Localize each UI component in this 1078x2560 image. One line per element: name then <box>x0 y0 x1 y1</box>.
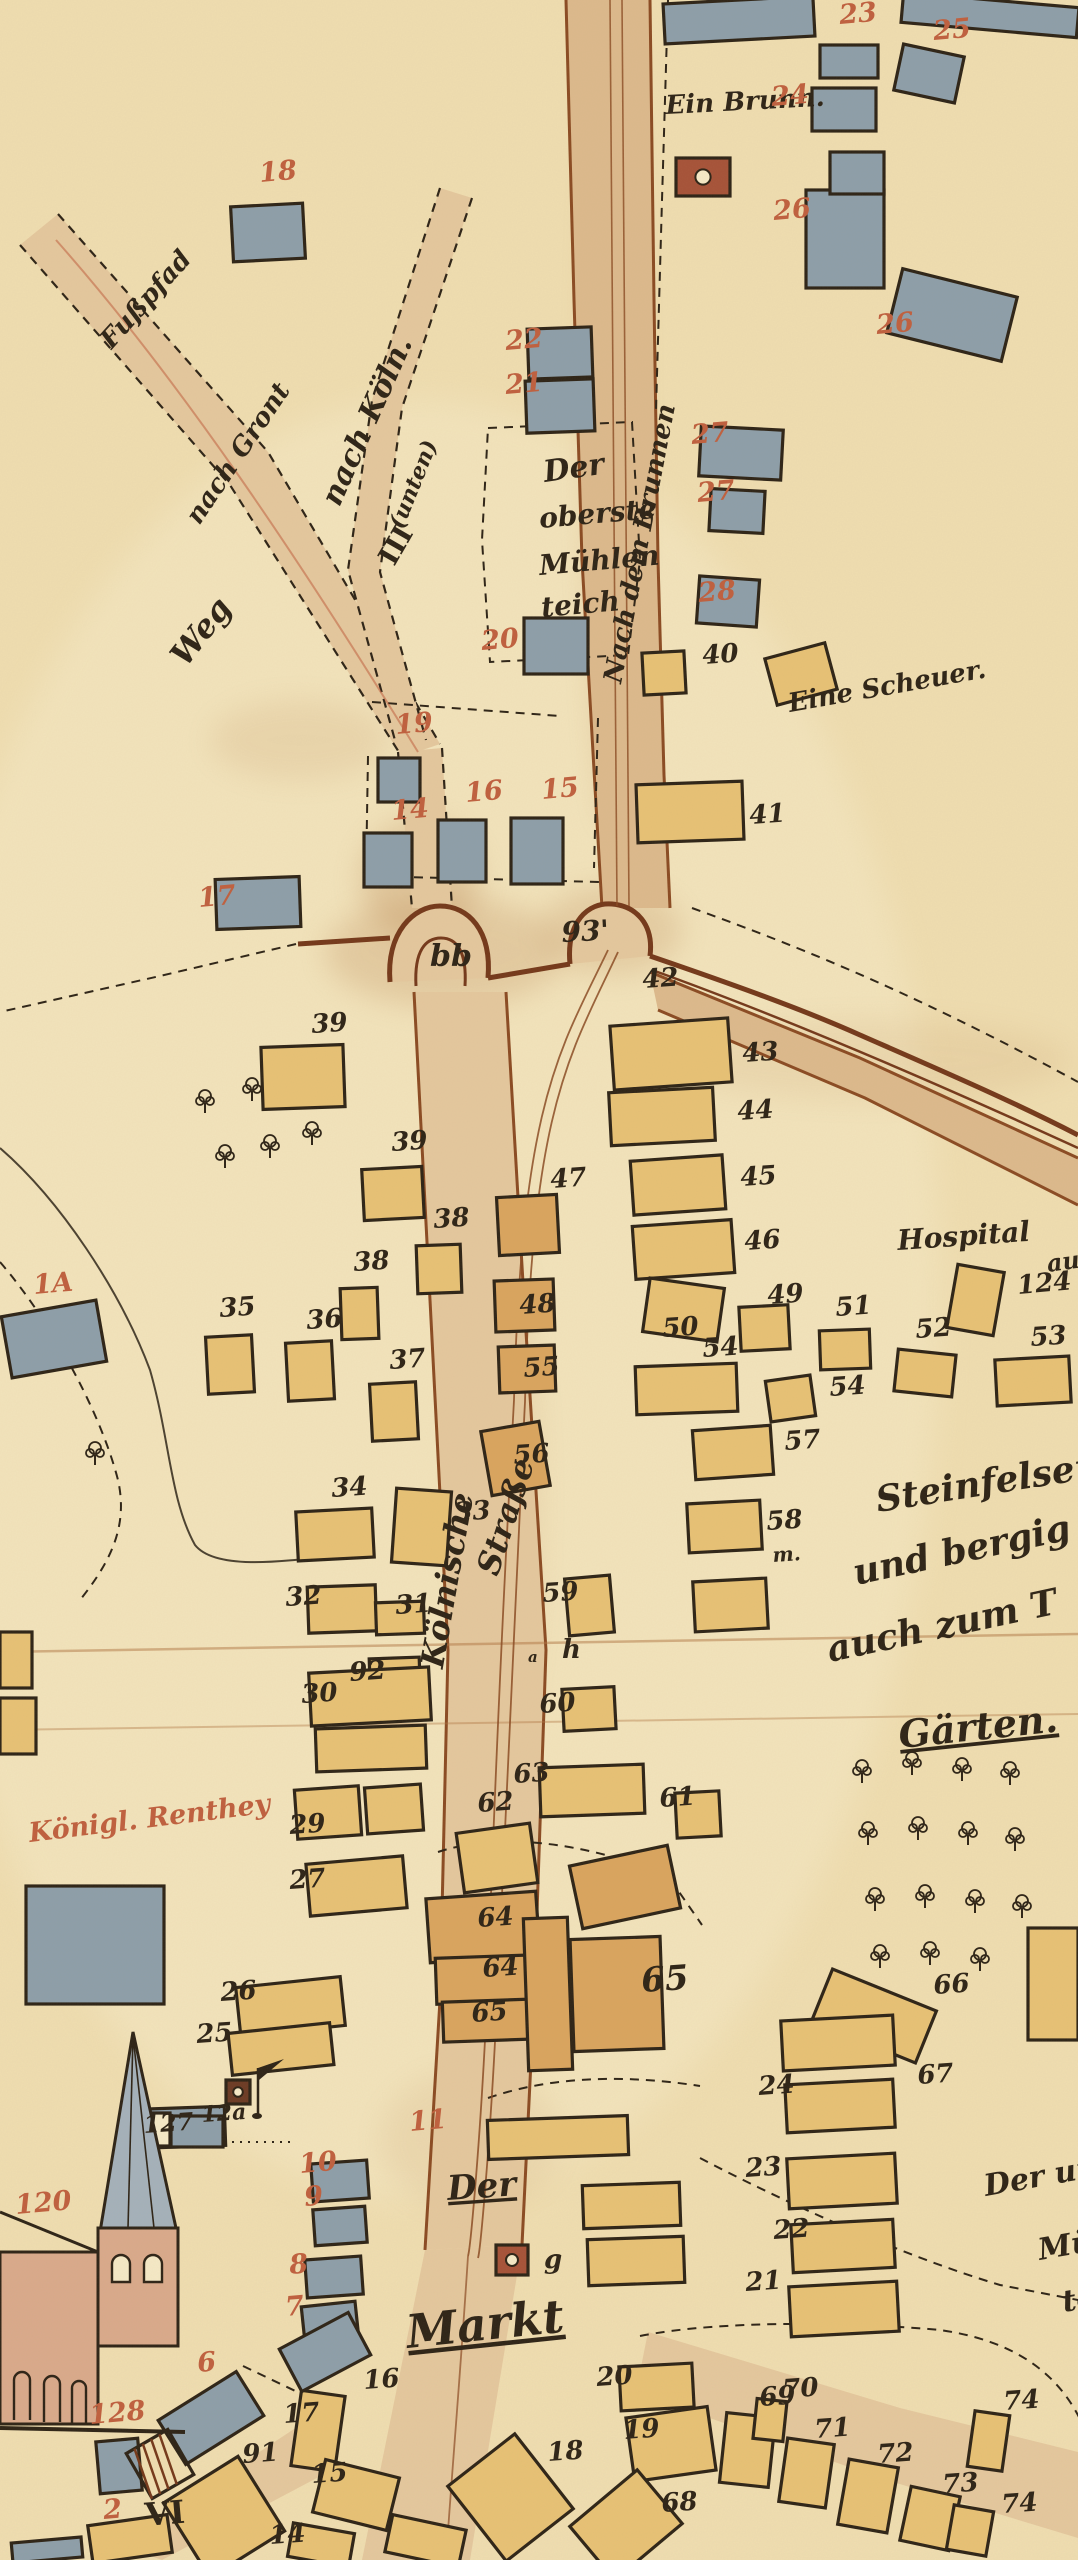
building <box>632 1220 734 1280</box>
building-footprint <box>364 833 412 887</box>
building <box>635 1363 738 1414</box>
house-number-red: 10 <box>298 2146 338 2180</box>
building-footprint <box>630 1155 726 1215</box>
house-number-red: 8 <box>287 2248 310 2281</box>
church-tower-window <box>112 2255 130 2282</box>
church-tower <box>98 2228 178 2346</box>
building-footprint <box>261 1045 345 1110</box>
house-number: 42 <box>641 963 679 995</box>
building-footprint <box>765 1375 815 1422</box>
house-number: 17 <box>282 2398 320 2430</box>
building-footprint <box>228 2023 334 2075</box>
building-footprint <box>370 1382 419 1441</box>
building-footprint <box>785 2079 895 2133</box>
house-number-red: 14 <box>390 793 430 827</box>
house-number-red: 25 <box>931 13 972 47</box>
building-footprint <box>364 1784 423 1834</box>
building <box>587 2236 685 2285</box>
house-number: 49 <box>766 1279 804 1311</box>
building-footprint <box>820 45 878 78</box>
house-number-red: 1A <box>32 1267 74 1301</box>
building-footprint <box>806 190 884 288</box>
building <box>785 2079 895 2133</box>
building <box>511 818 563 884</box>
building-footprint <box>787 2153 897 2209</box>
house-number-red: 2 <box>101 2493 123 2526</box>
house-number-red: 9 <box>303 2180 325 2213</box>
house-number: 58 <box>765 1505 803 1537</box>
building-footprint <box>362 1166 425 1220</box>
historic-town-map: Ein Brunn.DerobersteMühlenteichNach dem … <box>0 0 1078 2560</box>
house-number-red: 120 <box>14 2185 73 2221</box>
house-number: 47 <box>549 1163 587 1195</box>
building <box>642 651 686 695</box>
map-label: a <box>528 1648 538 1666</box>
house-number: 48 <box>518 1289 556 1321</box>
house-number: 56 <box>512 1439 550 1471</box>
house-number: 66 <box>932 1969 970 2001</box>
map-label: h <box>562 1635 581 1665</box>
building <box>456 1823 538 1893</box>
house-number: 41 <box>748 799 786 831</box>
building-footprint <box>296 1508 374 1561</box>
house-number: 29 <box>287 1809 326 1842</box>
building <box>610 1018 732 1090</box>
house-number-red: 15 <box>540 772 580 806</box>
map-label: bb <box>430 939 472 974</box>
building <box>830 152 884 194</box>
building-footprint <box>946 2505 993 2556</box>
house-number: 91 <box>241 2438 279 2470</box>
building <box>206 1335 255 1394</box>
building-footprint <box>632 1220 734 1280</box>
building <box>894 1349 956 1397</box>
house-number-red: 27 <box>695 475 736 509</box>
building-footprint <box>779 2438 834 2508</box>
building <box>663 0 815 44</box>
building-footprint <box>0 1632 32 1688</box>
building <box>364 1784 423 1834</box>
house-number: 51 <box>834 1291 872 1323</box>
house-number: 64 <box>476 1902 514 1934</box>
house-number: 64 <box>481 1952 519 1984</box>
building <box>636 781 744 843</box>
building <box>779 2438 834 2508</box>
building <box>787 2153 897 2209</box>
house-number: 43 <box>741 1037 779 1069</box>
house-number: 54 <box>701 1332 739 1364</box>
house-number: 30 <box>300 1678 338 1710</box>
house-number: 23 <box>743 2152 782 2185</box>
building <box>370 1382 419 1441</box>
building <box>1028 1928 1078 2040</box>
building <box>340 1287 379 1339</box>
well-mouth <box>506 2254 518 2266</box>
building <box>296 1508 374 1561</box>
house-number-red: 22 <box>503 323 544 357</box>
house-number: 15 <box>310 2458 348 2490</box>
building <box>438 820 486 882</box>
house-number: 39 <box>390 1126 428 1158</box>
house-number: 53 <box>1029 1321 1067 1353</box>
house-number: 55 <box>522 1352 560 1384</box>
house-number: 26 <box>218 1976 257 2009</box>
house-number-red: 19 <box>394 707 434 741</box>
building-footprint <box>456 1823 538 1893</box>
building-footprint <box>523 1917 572 2070</box>
house-number: 33 <box>453 1496 491 1528</box>
building-footprint <box>524 618 588 674</box>
map-label: g <box>544 2245 562 2275</box>
building-footprint <box>819 1329 870 1370</box>
building <box>0 1698 36 1754</box>
house-number-red: 128 <box>88 2395 147 2431</box>
building-footprint <box>305 2256 364 2298</box>
house-number-red: 26 <box>771 193 812 227</box>
building <box>231 203 306 262</box>
house-number: 92 <box>348 1656 386 1688</box>
house-number: m. <box>772 1541 802 1567</box>
building <box>995 1356 1071 1406</box>
building <box>487 2116 628 2160</box>
well-mouth <box>695 169 710 184</box>
house-number-red: 16 <box>464 775 504 809</box>
building <box>261 1045 345 1110</box>
building <box>630 1155 726 1215</box>
building <box>497 1194 560 1255</box>
building <box>676 158 730 196</box>
house-number: 16 <box>362 2364 400 2396</box>
house-number: 67 <box>916 2059 954 2091</box>
building <box>781 2015 895 2071</box>
building-footprint <box>663 0 815 44</box>
building-footprint <box>642 651 686 695</box>
house-number: 61 <box>658 1782 696 1814</box>
house-number: 63 <box>512 1758 550 1790</box>
house-number: 60 <box>538 1688 576 1720</box>
house-number: 65 <box>470 1997 508 2029</box>
house-number: 52 <box>914 1313 952 1345</box>
building <box>26 1886 164 2004</box>
building-footprint <box>687 1500 762 1553</box>
ink-stain <box>210 700 390 780</box>
building <box>362 1166 425 1220</box>
house-number: 14 <box>268 2519 306 2551</box>
house-number: 36 <box>305 1304 343 1336</box>
house-number: 73 <box>941 2468 979 2500</box>
building-footprint <box>781 2015 895 2071</box>
well-mouth <box>233 2087 243 2097</box>
building <box>228 2023 334 2075</box>
building-footprint <box>231 203 306 262</box>
building <box>305 2256 364 2298</box>
house-number: 45 <box>739 1161 777 1193</box>
house-number: 35 <box>218 1292 256 1324</box>
building-footprint <box>26 1886 164 2004</box>
map-label: Der <box>445 2164 520 2209</box>
building-footprint <box>582 2182 680 2228</box>
house-number-red: 24 <box>769 79 810 113</box>
building <box>765 1375 815 1422</box>
house-number-red: 7 <box>284 2290 306 2323</box>
house-number-red: 11 <box>408 2104 448 2138</box>
building <box>313 2206 367 2246</box>
house-number: 70 <box>781 2373 819 2405</box>
building <box>739 1305 790 1352</box>
building <box>838 2459 899 2533</box>
building-footprint <box>789 2281 899 2337</box>
building-footprint <box>438 820 486 882</box>
house-number: 71 <box>813 2413 851 2445</box>
building-footprint <box>1028 1928 1078 2040</box>
house-number-red: 28 <box>696 575 737 609</box>
building-footprint <box>967 2411 1009 2471</box>
house-number: 12a <box>201 2099 248 2128</box>
house-number: 24 <box>756 2070 795 2103</box>
building-footprint <box>416 1244 462 1294</box>
building <box>967 2411 1009 2471</box>
house-number: 44 <box>736 1095 774 1127</box>
building-footprint <box>830 152 884 194</box>
house-number: 32 <box>284 1581 322 1613</box>
building <box>687 1500 762 1553</box>
building-footprint <box>206 1335 255 1394</box>
house-number-red: 6 <box>196 2346 218 2379</box>
house-number: 27 <box>287 1864 326 1897</box>
building-footprint <box>497 1194 560 1255</box>
building-footprint <box>995 1356 1071 1406</box>
house-number: 46 <box>743 1225 781 1257</box>
house-number: 39 <box>310 1008 348 1040</box>
building <box>820 45 878 78</box>
building <box>286 1341 335 1401</box>
house-number: 22 <box>771 2214 810 2247</box>
house-number-red: 23 <box>837 0 878 31</box>
map-label: VI <box>142 2493 186 2534</box>
building <box>416 1244 462 1294</box>
house-number: 38 <box>432 1203 470 1235</box>
building-footprint <box>739 1305 790 1352</box>
building-footprint <box>636 781 744 843</box>
building-footprint <box>692 1425 773 1479</box>
house-number: 19 <box>622 2414 660 2446</box>
building-footprint <box>286 1341 335 1401</box>
building <box>539 1764 645 1817</box>
house-number: 40 <box>701 639 739 671</box>
building-footprint <box>315 1725 426 1772</box>
building <box>524 618 588 674</box>
building <box>693 1578 769 1632</box>
house-number: 127 <box>142 2107 194 2139</box>
house-number: 18 <box>546 2436 584 2468</box>
house-number: 38 <box>352 1246 390 1278</box>
house-number-red: 27 <box>689 417 730 451</box>
house-number-red: 26 <box>874 307 915 341</box>
flag-base <box>252 2113 262 2119</box>
house-number: 59 <box>541 1577 579 1609</box>
house-number: 72 <box>876 2438 914 2470</box>
building <box>947 1264 1004 1335</box>
building <box>364 833 412 887</box>
building-footprint <box>894 1349 956 1397</box>
house-number: 65 <box>640 1958 690 2001</box>
building <box>609 1087 716 1145</box>
building <box>692 1425 773 1479</box>
house-number: 74 <box>1000 2488 1038 2520</box>
building <box>806 190 884 288</box>
building-footprint <box>340 1287 379 1339</box>
building <box>496 2245 528 2275</box>
building <box>315 1725 426 1772</box>
building <box>0 1632 32 1688</box>
building-footprint <box>838 2459 899 2533</box>
building-footprint <box>693 1578 769 1632</box>
house-number: 20 <box>594 2361 633 2394</box>
building-footprint <box>947 1264 1004 1335</box>
house-number-red: 21 <box>503 367 544 401</box>
building-footprint <box>635 1363 738 1414</box>
house-number: 54 <box>828 1371 866 1403</box>
house-number: 62 <box>476 1787 514 1819</box>
building <box>523 1917 572 2070</box>
building-footprint <box>610 1018 732 1090</box>
map-label: 124 <box>1016 1266 1073 1301</box>
house-number: 31 <box>394 1589 432 1621</box>
building <box>789 2281 899 2337</box>
house-number-red: 18 <box>258 155 298 189</box>
church-tower-window <box>144 2255 162 2282</box>
building <box>582 2182 680 2228</box>
house-number-red: 17 <box>197 880 237 914</box>
house-number: 34 <box>330 1472 368 1504</box>
building-footprint <box>587 2236 685 2285</box>
house-number: 50 <box>661 1312 699 1344</box>
house-number: 21 <box>743 2266 782 2299</box>
map-label: teich <box>540 584 621 624</box>
building <box>819 1329 870 1370</box>
building-footprint <box>487 2116 628 2160</box>
house-number: 25 <box>194 2018 233 2051</box>
building <box>946 2505 993 2556</box>
house-number: 57 <box>783 1425 821 1457</box>
house-number: 74 <box>1002 2385 1040 2417</box>
building-footprint <box>313 2206 367 2246</box>
house-number: 37 <box>388 1344 426 1376</box>
map-label: 93' <box>561 914 610 949</box>
house-number: 68 <box>660 2487 698 2519</box>
building-footprint <box>539 1764 645 1817</box>
building-footprint <box>511 818 563 884</box>
building-footprint <box>0 1698 36 1754</box>
house-number-red: 20 <box>479 623 520 657</box>
building-footprint <box>609 1087 716 1145</box>
